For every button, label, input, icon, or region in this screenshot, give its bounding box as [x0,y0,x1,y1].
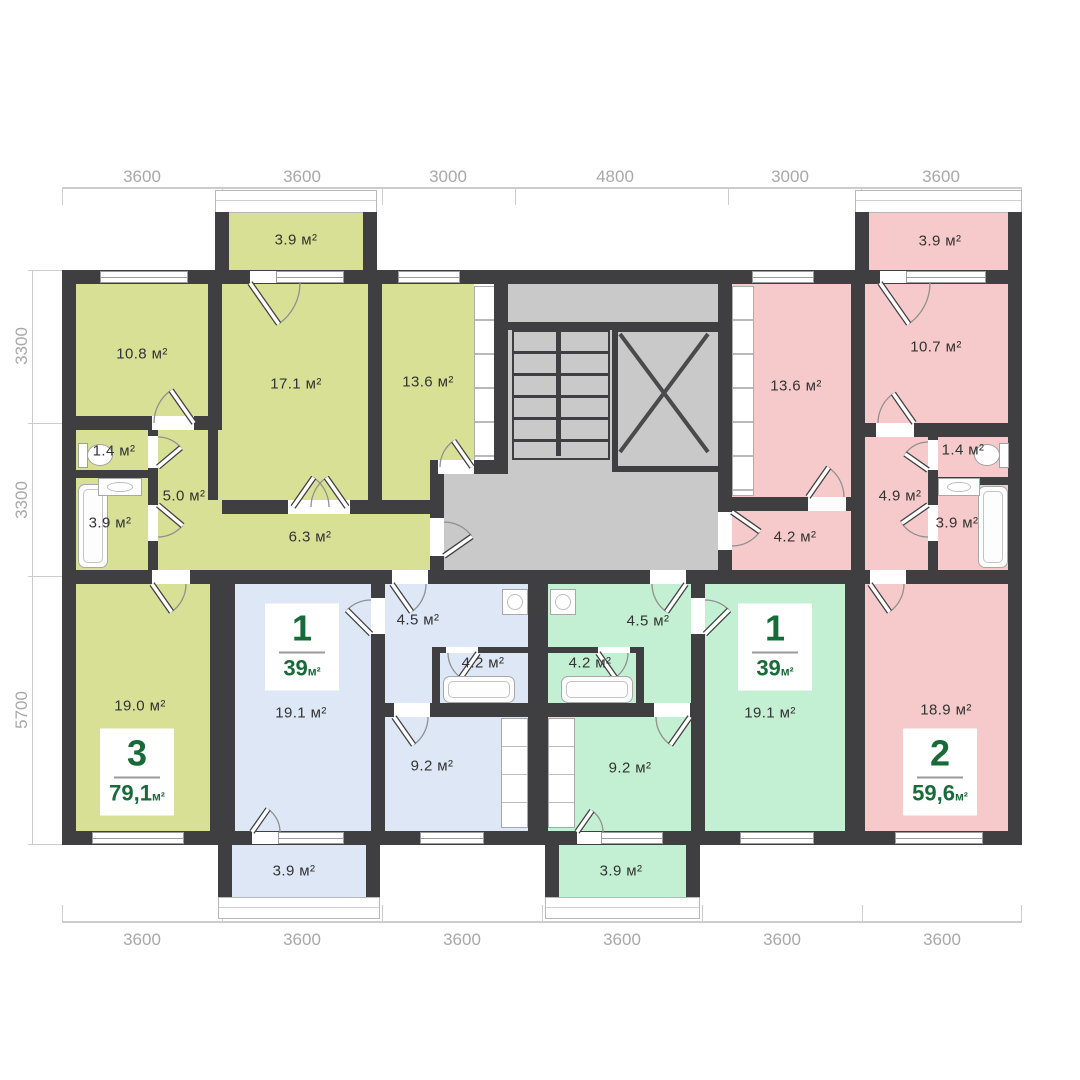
washer-icon [550,589,576,615]
wall-segment [494,270,508,474]
door-opening [598,647,630,653]
apartment-area: 39м² [265,658,339,683]
room-area-mint-bath: 4.2 м² [569,655,612,672]
wall-segment [62,470,158,478]
window-icon [276,271,344,283]
door-opening [252,832,278,844]
wall-segment [208,284,222,430]
room-area-blue-living: 19.1 м² [275,705,326,722]
window-icon [420,832,484,844]
door-opening [577,832,601,844]
apartment-badge-2: 2 59,6м² [903,729,977,816]
room-area-olive-bath: 3.9 м² [89,515,132,532]
room-area-olive-bed1: 10.8 м² [116,346,167,363]
dimension-line-top [62,187,1022,189]
wall-segment [855,212,869,270]
door-opening [928,440,938,470]
sink-icon [938,478,980,496]
bathtub-icon [978,486,1008,568]
apartment-area: 59,6м² [903,783,977,808]
dim-bottom-6: 3600 [923,930,961,950]
wall-segment [210,584,235,831]
room-area-blue-kitchen: 9.2 м² [411,758,454,775]
dimension-tick [702,905,703,923]
elevator-shaft [612,326,728,472]
room-area-pink-wc: 1.4 м² [942,442,985,459]
door-opening [152,570,190,584]
dimension-tick [28,270,62,271]
room-area-pink-bath: 3.9 м² [936,515,979,532]
bathtub-icon [561,676,633,703]
wall-segment [528,584,548,831]
dimension-tick [862,905,863,923]
wall-segment [215,212,229,270]
wall-segment [545,845,559,897]
room-area-pink-hall2: 4.2 м² [774,529,817,546]
room-area-mint-balcony: 3.9 м² [600,863,643,880]
kitchen-unit [501,718,528,828]
dimension-tick [62,905,63,923]
window-icon [601,832,663,844]
kitchen-unit [548,718,575,828]
window-icon [398,271,460,283]
stair-core-area [444,474,508,570]
wall-segment [636,653,644,703]
balcony-railing [855,190,1022,213]
door-opening [392,570,428,584]
badge-divider [917,777,963,779]
wall-segment [432,653,440,703]
dim-left-3: 5700 [12,691,32,729]
dim-bottom-3: 3600 [443,930,481,950]
room-area-pink-bed2: 10.7 м² [910,339,961,356]
wall-segment [366,845,380,897]
bathtub-icon [443,676,515,703]
room-area-olive-balcony: 3.9 м² [275,232,318,249]
door-opening [650,570,686,584]
wall-segment [218,845,232,897]
stair-stringer [556,330,561,456]
wall-segment [686,845,700,897]
room-area-pink-living: 18.9 м² [920,702,971,719]
wall-segment [363,212,377,270]
room-area-olive-bed3: 13.6 м² [402,374,453,391]
dim-bottom-4: 3600 [603,930,641,950]
window-icon [100,271,188,283]
door-opening [654,703,690,717]
wall-segment [508,322,718,330]
dimension-tick [382,187,383,205]
room-area-pink-bed1: 13.6 м² [770,378,821,395]
staircase [512,330,610,460]
badge-divider [114,777,160,779]
door-opening [371,598,385,634]
door-opening [718,512,732,550]
door-opening [148,436,158,468]
apartment-number: 1 [265,611,339,647]
dim-top-5: 3000 [771,167,809,187]
door-opening [250,271,276,283]
room-area-olive-living: 19.0 м² [114,698,165,715]
room-area-blue-hall: 4.5 м² [397,612,440,629]
window-icon [740,832,814,844]
door-opening [394,703,430,717]
wall-segment [1008,270,1022,845]
door-opening [430,518,444,556]
balcony-railing [545,897,700,919]
dim-top-6: 3600 [922,167,960,187]
window-icon [278,832,344,844]
wardrobe-strip [474,286,496,462]
apartment-badge-1-blue: 1 39м² [265,604,339,691]
window-icon [906,271,986,283]
room-area-blue-balcony: 3.9 м² [273,863,316,880]
window-icon [92,832,184,844]
apartment-number: 3 [100,736,174,772]
door-opening [880,271,906,283]
wall-segment [1008,212,1022,270]
dimension-tick [382,905,383,923]
wall-segment [208,430,218,500]
wall-segment [845,584,865,831]
dim-left-2: 3300 [12,481,32,519]
floor-plan: 3600 3600 3000 4800 3000 3600 3300 3300 … [0,0,1080,1080]
room-area-pink-balcony: 3.9 м² [919,233,962,250]
wall-segment [62,831,1022,845]
apartment-badge-3: 3 79,1м² [100,729,174,816]
apartment-number: 1 [738,611,812,647]
door-opening [870,570,906,584]
room-area-pink-hall1: 4.9 м² [879,488,922,505]
dimension-tick [515,187,516,205]
room-area-mint-hall: 4.5 м² [627,613,670,630]
apartment-area: 39м² [738,658,812,683]
apartment-number: 2 [903,736,977,772]
badge-divider [279,652,325,654]
apartment-area: 79,1м² [100,783,174,808]
balcony-railing [215,190,377,213]
door-opening [152,416,194,430]
wall-segment [62,270,1022,284]
wall-segment [368,284,382,514]
room-area-mint-kitchen: 9.2 м² [609,760,652,777]
dim-top-3: 3000 [429,167,467,187]
badge-divider [752,652,798,654]
dimension-tick [542,905,543,923]
door-opening [438,460,474,474]
door-opening [446,647,478,653]
dim-top-1: 3600 [123,167,161,187]
dimension-tick [728,187,729,205]
room-area-olive-wc: 1.4 м² [93,443,136,460]
dim-top-4: 4800 [596,167,634,187]
wardrobe-strip [732,286,754,496]
room-area-olive-bed2: 17.1 м² [270,376,321,393]
door-opening [691,598,705,634]
room-area-olive-hall1: 5.0 м² [163,488,206,505]
dimension-tick [28,576,62,577]
window-icon [752,271,814,283]
door-opening [148,505,158,541]
door-opening [808,497,846,511]
room-area-olive-hall2: 6.3 м² [289,529,332,546]
room-area-mint-living: 19.1 м² [744,705,795,722]
sink-icon [98,478,142,496]
dimension-tick [28,844,62,845]
dimension-tick [28,423,62,424]
dimension-tick [1021,905,1022,923]
wall-segment [851,284,865,570]
room-area-blue-bath: 4.2 м² [462,655,505,672]
dim-top-2: 3600 [283,167,321,187]
door-opening [876,423,914,437]
balcony-railing [218,897,380,919]
dim-bottom-5: 3600 [763,930,801,950]
dim-left-1: 3300 [12,327,32,365]
door-opening [288,500,350,514]
washer-icon [502,589,528,615]
window-icon [895,832,983,844]
wall-segment [62,270,76,845]
dimension-line-left [32,270,33,845]
apartment-badge-1-mint: 1 39м² [738,604,812,691]
dim-bottom-2: 3600 [283,930,321,950]
dimension-tick [62,187,63,205]
dim-bottom-1: 3600 [123,930,161,950]
